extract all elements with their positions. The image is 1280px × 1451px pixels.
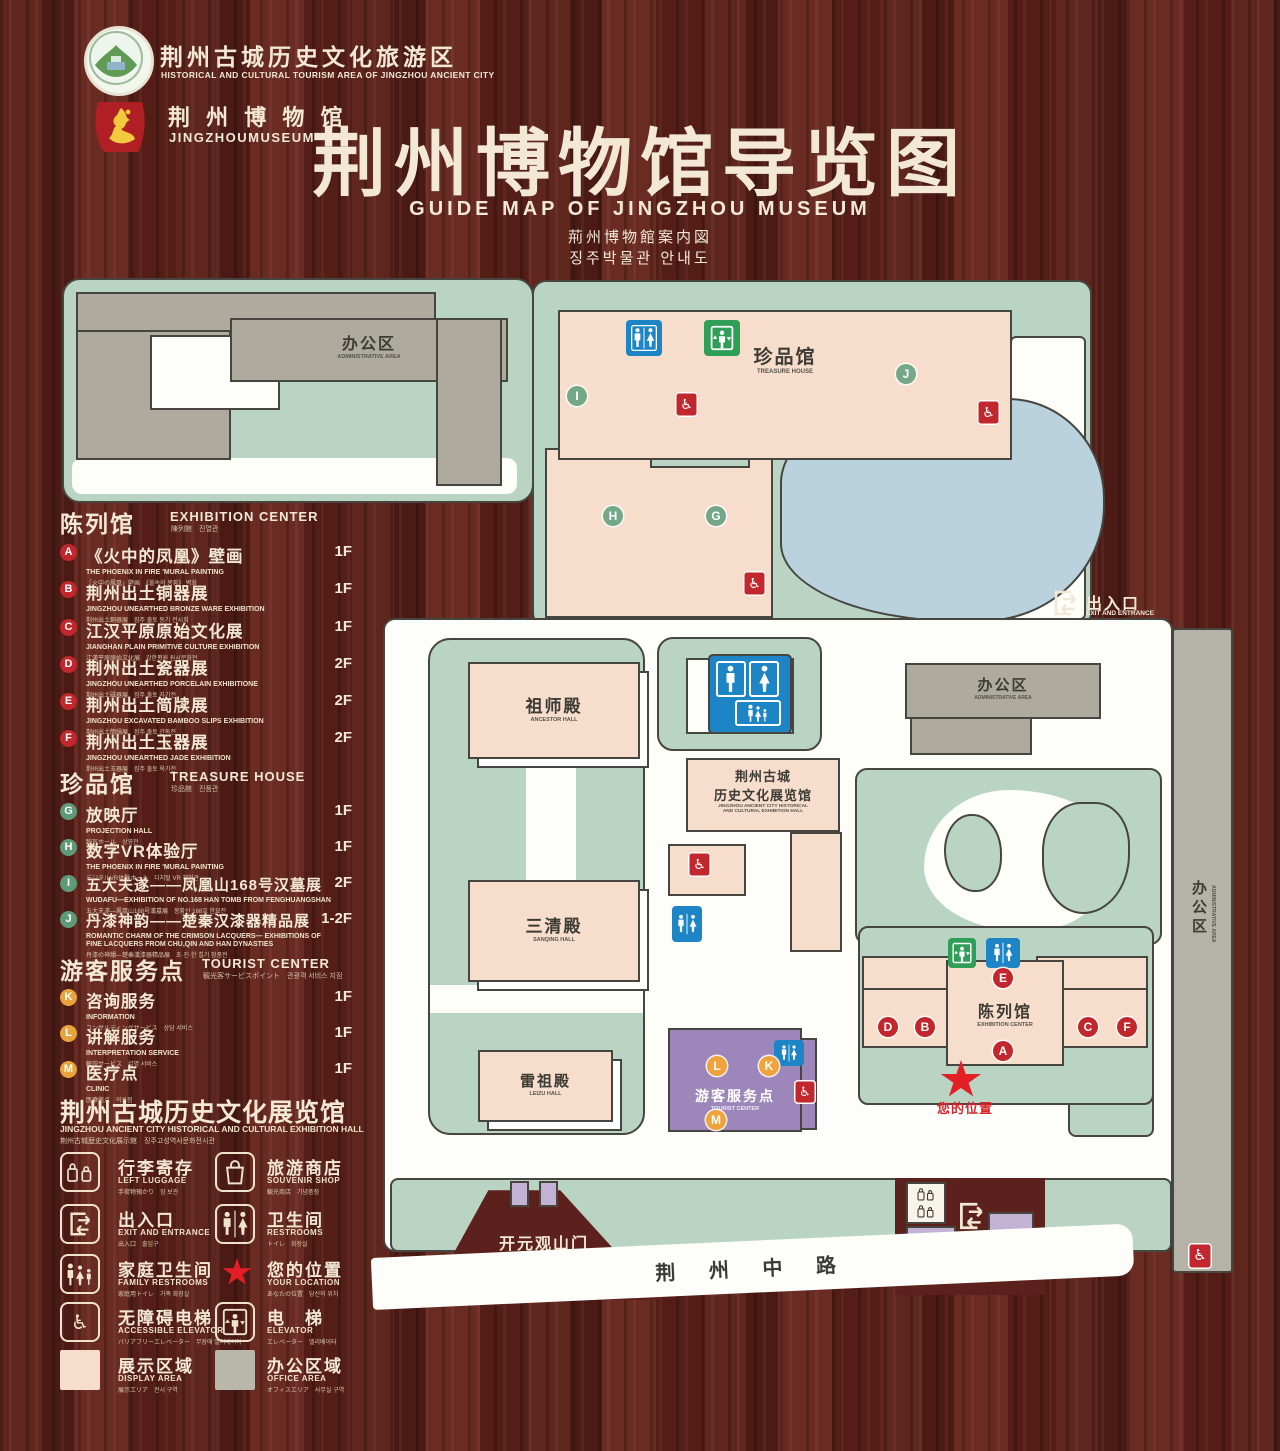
legend-item-en: PROJECTION HALL [86, 828, 352, 836]
legend-item-zh: 荆州出土简牍展 [86, 692, 352, 716]
map-marker-A: A [993, 1041, 1013, 1061]
page-title: 荆州博物馆导览图 [0, 104, 1280, 211]
exit-top-label-en: EXIT AND ENTRANCE [1086, 610, 1154, 617]
legend-icon-en: FAMILY RESTROOMS [118, 1278, 208, 1287]
legend-badge: E [60, 693, 77, 710]
legend-item-zh: 江汉平原原始文化展 [86, 618, 352, 642]
exhibition-center-label: 陈列馆 [948, 998, 1062, 1022]
legend-icon-sub: 家庭用トイレ 가족 화장실 [118, 1289, 189, 1298]
legend-icon-sub: エレベーター 엘리베이터 [267, 1337, 337, 1346]
legend-badge: H [60, 839, 77, 856]
legend-hall-note-sub: 荆州古城歴史文化展示館 징주고성역사문화전시관 [60, 1136, 215, 1146]
admin-top-building-east-arm [436, 318, 502, 486]
legend-item-en: WUDAFU—EXHIBITION OF NO.168 HAN TOMB FRO… [86, 897, 352, 905]
your-location-icon [222, 1258, 252, 1287]
legend-icon-sub: 観光商店 기념품점 [267, 1187, 319, 1196]
legend-icon-en: RESTROOMS [267, 1228, 323, 1237]
sanqing-hall-label: 三清殿 [470, 912, 638, 937]
souvenir-shop-icon [215, 1152, 255, 1192]
garden-block [855, 768, 1162, 945]
legend-item-en: JIANGHAN PLAIN PRIMITIVE CULTURE EXHIBIT… [86, 644, 352, 652]
map-marker-K: K [759, 1056, 779, 1076]
map-marker-M: M [706, 1110, 726, 1130]
map-path [526, 756, 576, 882]
legend-item-zh: 医疗点 [86, 1060, 352, 1084]
leizu-hall-label-en: LEIZU HALL [480, 1091, 611, 1097]
hist-hall-label-en2: AND CULTURAL EXHIBITION HALL [688, 809, 838, 814]
map-marker-C: C [1078, 1017, 1098, 1037]
admin-strip-building: 办公区 ADMINISTRATIVE AREA [1172, 628, 1233, 1273]
tourism-area-logo [84, 26, 154, 96]
restrooms-icon [626, 320, 662, 356]
legend-item-floor: 1F [334, 618, 352, 635]
legend-section-tourist-title-en: TOURIST CENTER [202, 956, 330, 971]
admin-right-label: 办公区 [907, 674, 1099, 695]
map-marker-J: J [896, 364, 916, 384]
legend-item-en: INTERPRETATION SERVICE [86, 1050, 352, 1058]
map-marker-D: D [878, 1017, 898, 1037]
legend-section-treasure-title: 珍品馆 [60, 765, 135, 799]
legend-item-en: ROMANTIC CHARM OF THE CRIMSON LACQUERS— … [86, 933, 326, 949]
restrooms-icon [215, 1204, 255, 1244]
map-marker-H: H [603, 506, 623, 526]
exit-entrance-icon [955, 1200, 987, 1232]
legend-item-floor: 1F [334, 988, 352, 1005]
accessible-elevator-icon: ♿ [977, 400, 1000, 425]
legend-item-en: THE PHOENIX IN FIRE 'MURAL PAINTING [86, 569, 352, 577]
legend-item-en: THE PHOENIX IN FIRE 'MURAL PAINTING [86, 864, 352, 872]
tourism-area-logo-subtitle: HISTORICAL AND CULTURAL TOURISM AREA OF … [161, 70, 495, 80]
tourist-center-label-en: TOURIST CENTER [670, 1106, 800, 1112]
tourism-area-logo-title: 荆州古城历史文化旅游区 [160, 38, 457, 72]
road-label: 荆 州 中 路 [655, 1248, 851, 1286]
sanqing-hall-label-en: SANQING HALL [470, 937, 638, 943]
legend-badge: C [60, 619, 77, 636]
legend-item-floor: 1F [334, 580, 352, 597]
map-path [430, 985, 643, 1013]
legend-item-zh: 咨询服务 [86, 988, 352, 1012]
legend-item-zh: 五大夫遂——凤凰山168号汉墓展 [86, 874, 352, 895]
legend-item-floor: 2F [334, 729, 352, 746]
legend-section-treasure-title-sub: 珍品館 진품관 [171, 784, 218, 794]
legend-item-floor: 2F [334, 655, 352, 672]
elevator-icon [948, 938, 976, 968]
legend-section-exhibition-title-en: EXHIBITION CENTER [170, 509, 318, 524]
legend-icon-sub: あなたの位置 당신의 위치 [267, 1289, 338, 1298]
admin-right-label-en: ADMINISTRATIVE AREA [907, 695, 1099, 701]
museum-guide-poster: 荆州古城历史文化旅游区 HISTORICAL AND CULTURAL TOUR… [0, 0, 1280, 1451]
your-location-label: 您的位置 [920, 1098, 1010, 1117]
legend-area-sub: オフィスエリア 사무실 구역 [267, 1385, 344, 1394]
legend-badge: D [60, 656, 77, 673]
legend-item-zh: 讲解服务 [86, 1024, 352, 1048]
legend-section-tourist-title-sub: 観光客サービスポイント 관광객 서비스 지점 [203, 971, 342, 981]
hist-hall-east-wing [790, 832, 842, 952]
legend-item-en: JINGZHOU EXCAVATED BAMBOO SLIPS EXHIBITI… [86, 718, 352, 726]
legend-icon-sub: 出入口 출입구 [118, 1239, 159, 1248]
display-area-swatch [60, 1350, 100, 1390]
legend-item-en: INFORMATION [86, 1014, 352, 1022]
legend-badge: K [60, 989, 77, 1006]
tourist-center-label: 游客服务点 [670, 1086, 800, 1106]
legend-item-floor: 2F [334, 874, 352, 891]
legend-icon-en: ELEVATOR [267, 1326, 313, 1335]
hist-hall-label-line1: 荆州古城 [688, 766, 838, 785]
left-luggage-icon [60, 1152, 100, 1192]
left-luggage-icon [906, 1182, 946, 1224]
legend-badge: J [60, 911, 77, 928]
legend-icon-en: LEFT LUGGAGE [118, 1176, 187, 1185]
legend-hall-note-en: JINGZHOU ANCIENT CITY HISTORICAL AND CUL… [60, 1124, 364, 1134]
accessible-elevator-icon: ♿ [743, 571, 766, 596]
accessible-elevator-icon: ♿ [675, 392, 698, 417]
legend-section-exhibition-title: 陈列馆 [60, 505, 135, 539]
map-marker-L: L [707, 1056, 727, 1076]
legend-item-zh: 荆州出土瓷器展 [86, 655, 352, 679]
legend-item-en: JINGZHOU UNEARTHED BRONZE WARE EXHIBITIO… [86, 606, 352, 614]
legend-area-en: DISPLAY AREA [118, 1374, 182, 1383]
exhibition-center-label-en: EXHIBITION CENTER [948, 1022, 1062, 1028]
legend-badge: M [60, 1061, 77, 1078]
legend-item-en: JINGZHOU UNEARTHED PORCELAIN EXHIBITIONE [86, 681, 352, 689]
elevator-icon [215, 1302, 255, 1342]
legend-icon-en: YOUR LOCATION [267, 1278, 340, 1287]
restrooms-icon [672, 906, 702, 942]
legend-item-floor: 1F [334, 1024, 352, 1041]
restrooms-sign [708, 654, 792, 734]
restrooms-icon [986, 938, 1020, 968]
legend-badge: A [60, 544, 77, 561]
ancestor-hall-label-en: ANCESTOR HALL [470, 717, 638, 723]
legend-item-en: JINGZHOU UNEARTHED JADE EXHIBITION [86, 755, 352, 763]
gate-pier [539, 1181, 558, 1207]
legend-section-exhibition-title-sub: 陳列館 진열관 [171, 524, 218, 534]
admin-strip-label-en: ADMINISTRATIVE AREA [1210, 885, 1216, 943]
exit-entrance-icon [1050, 588, 1080, 618]
legend-badge: G [60, 803, 77, 820]
accessible-elevator-icon: ♿ [688, 852, 711, 877]
legend-item-floor: 1F [334, 543, 352, 560]
legend-item-floor: 1F [334, 838, 352, 855]
legend-section-tourist-title: 游客服务点 [60, 952, 185, 986]
legend-item-floor: 1-2F [321, 910, 352, 927]
legend-item-zh: 丹漆神韵——楚秦汉漆器精品展 [86, 910, 352, 931]
legend-badge: I [60, 875, 77, 892]
sanqing-hall-building: 三清殿 SANQING HALL [468, 880, 640, 982]
legend-item-zh: 荆州出土铜器展 [86, 580, 352, 604]
legend-item-floor: 1F [334, 1060, 352, 1077]
hist-hall-building: 荆州古城 历史文化展览馆 JINGZHOU ANCIENT CITY HISTO… [686, 758, 840, 832]
exit-entrance-icon [60, 1204, 100, 1244]
elevator-icon [704, 320, 740, 356]
legend-icon-en: SOUVENIR SHOP [267, 1176, 340, 1185]
hist-hall-label-line2: 历史文化展览馆 [688, 785, 838, 804]
map-marker-I: I [567, 386, 587, 406]
accessible-elevator-icon: ♿ [60, 1302, 100, 1342]
legend-item-zh: 《火中的凤凰》壁画 [86, 543, 352, 567]
page-title-ja: 荊州博物館案内図 [0, 226, 1280, 247]
leizu-hall-label: 雷祖殿 [480, 1070, 611, 1091]
legend-area-en: OFFICE AREA [267, 1374, 326, 1383]
office-area-swatch [215, 1350, 255, 1390]
legend-item-I: I 五大夫遂——凤凰山168号汉墓展 2F WUDAFU—EXHIBITION … [60, 874, 352, 915]
garden-island [944, 814, 1002, 892]
page-title-en: GUIDE MAP OF JINGZHOU MUSEUM [0, 198, 1280, 221]
map-marker-E: E [993, 968, 1013, 988]
admin-strip-label: 办公区 [1188, 880, 1209, 937]
ancestor-hall-building: 祖师殿 ANCESTOR HALL [468, 662, 640, 759]
ancestor-hall-label: 祖师殿 [470, 692, 638, 717]
map-marker-G: G [706, 506, 726, 526]
leizu-hall-building: 雷祖殿 LEIZU HALL [478, 1050, 613, 1122]
admin-right-building: 办公区 ADMINISTRATIVE AREA [905, 663, 1101, 719]
legend-item-zh: 放映厅 [86, 802, 352, 826]
legend-item-floor: 2F [334, 692, 352, 709]
page-title-ko: 징주박물관 안내도 [0, 247, 1280, 268]
map-marker-B: B [915, 1017, 935, 1037]
legend-section-treasure-title-en: TREASURE HOUSE [170, 769, 305, 784]
treasure-house-lower-wing [545, 448, 773, 618]
legend-item-zh: 数字VR体验厅 [86, 838, 352, 862]
legend-badge: F [60, 730, 77, 747]
legend-item-zh: 荆州出土玉器展 [86, 729, 352, 753]
accessible-elevator-icon: ♿ [794, 1080, 816, 1104]
legend-badge: B [60, 581, 77, 598]
legend-badge: L [60, 1025, 77, 1042]
treasure-house-label-en: TREASURE HOUSE [560, 369, 1010, 375]
gate-pier [510, 1181, 529, 1207]
legend-icon-en: ACCESSIBLE ELEVATOR [118, 1326, 224, 1335]
family-restrooms-icon [60, 1254, 100, 1294]
map-marker-F: F [1117, 1017, 1137, 1037]
garden-island [1042, 802, 1130, 914]
legend-area-sub: 展示エリア 전시 구역 [118, 1385, 178, 1394]
legend-item-floor: 1F [334, 802, 352, 819]
legend-icon-sub: トイレ 화장실 [267, 1239, 308, 1248]
accessible-elevator-icon: ♿ [1188, 1243, 1212, 1269]
admin-right-south-wing [910, 717, 1032, 755]
legend-icon-sub: 手荷物預かり 짐 보관 [118, 1187, 178, 1196]
legend-icon-en: EXIT AND ENTRANCE [118, 1228, 210, 1237]
